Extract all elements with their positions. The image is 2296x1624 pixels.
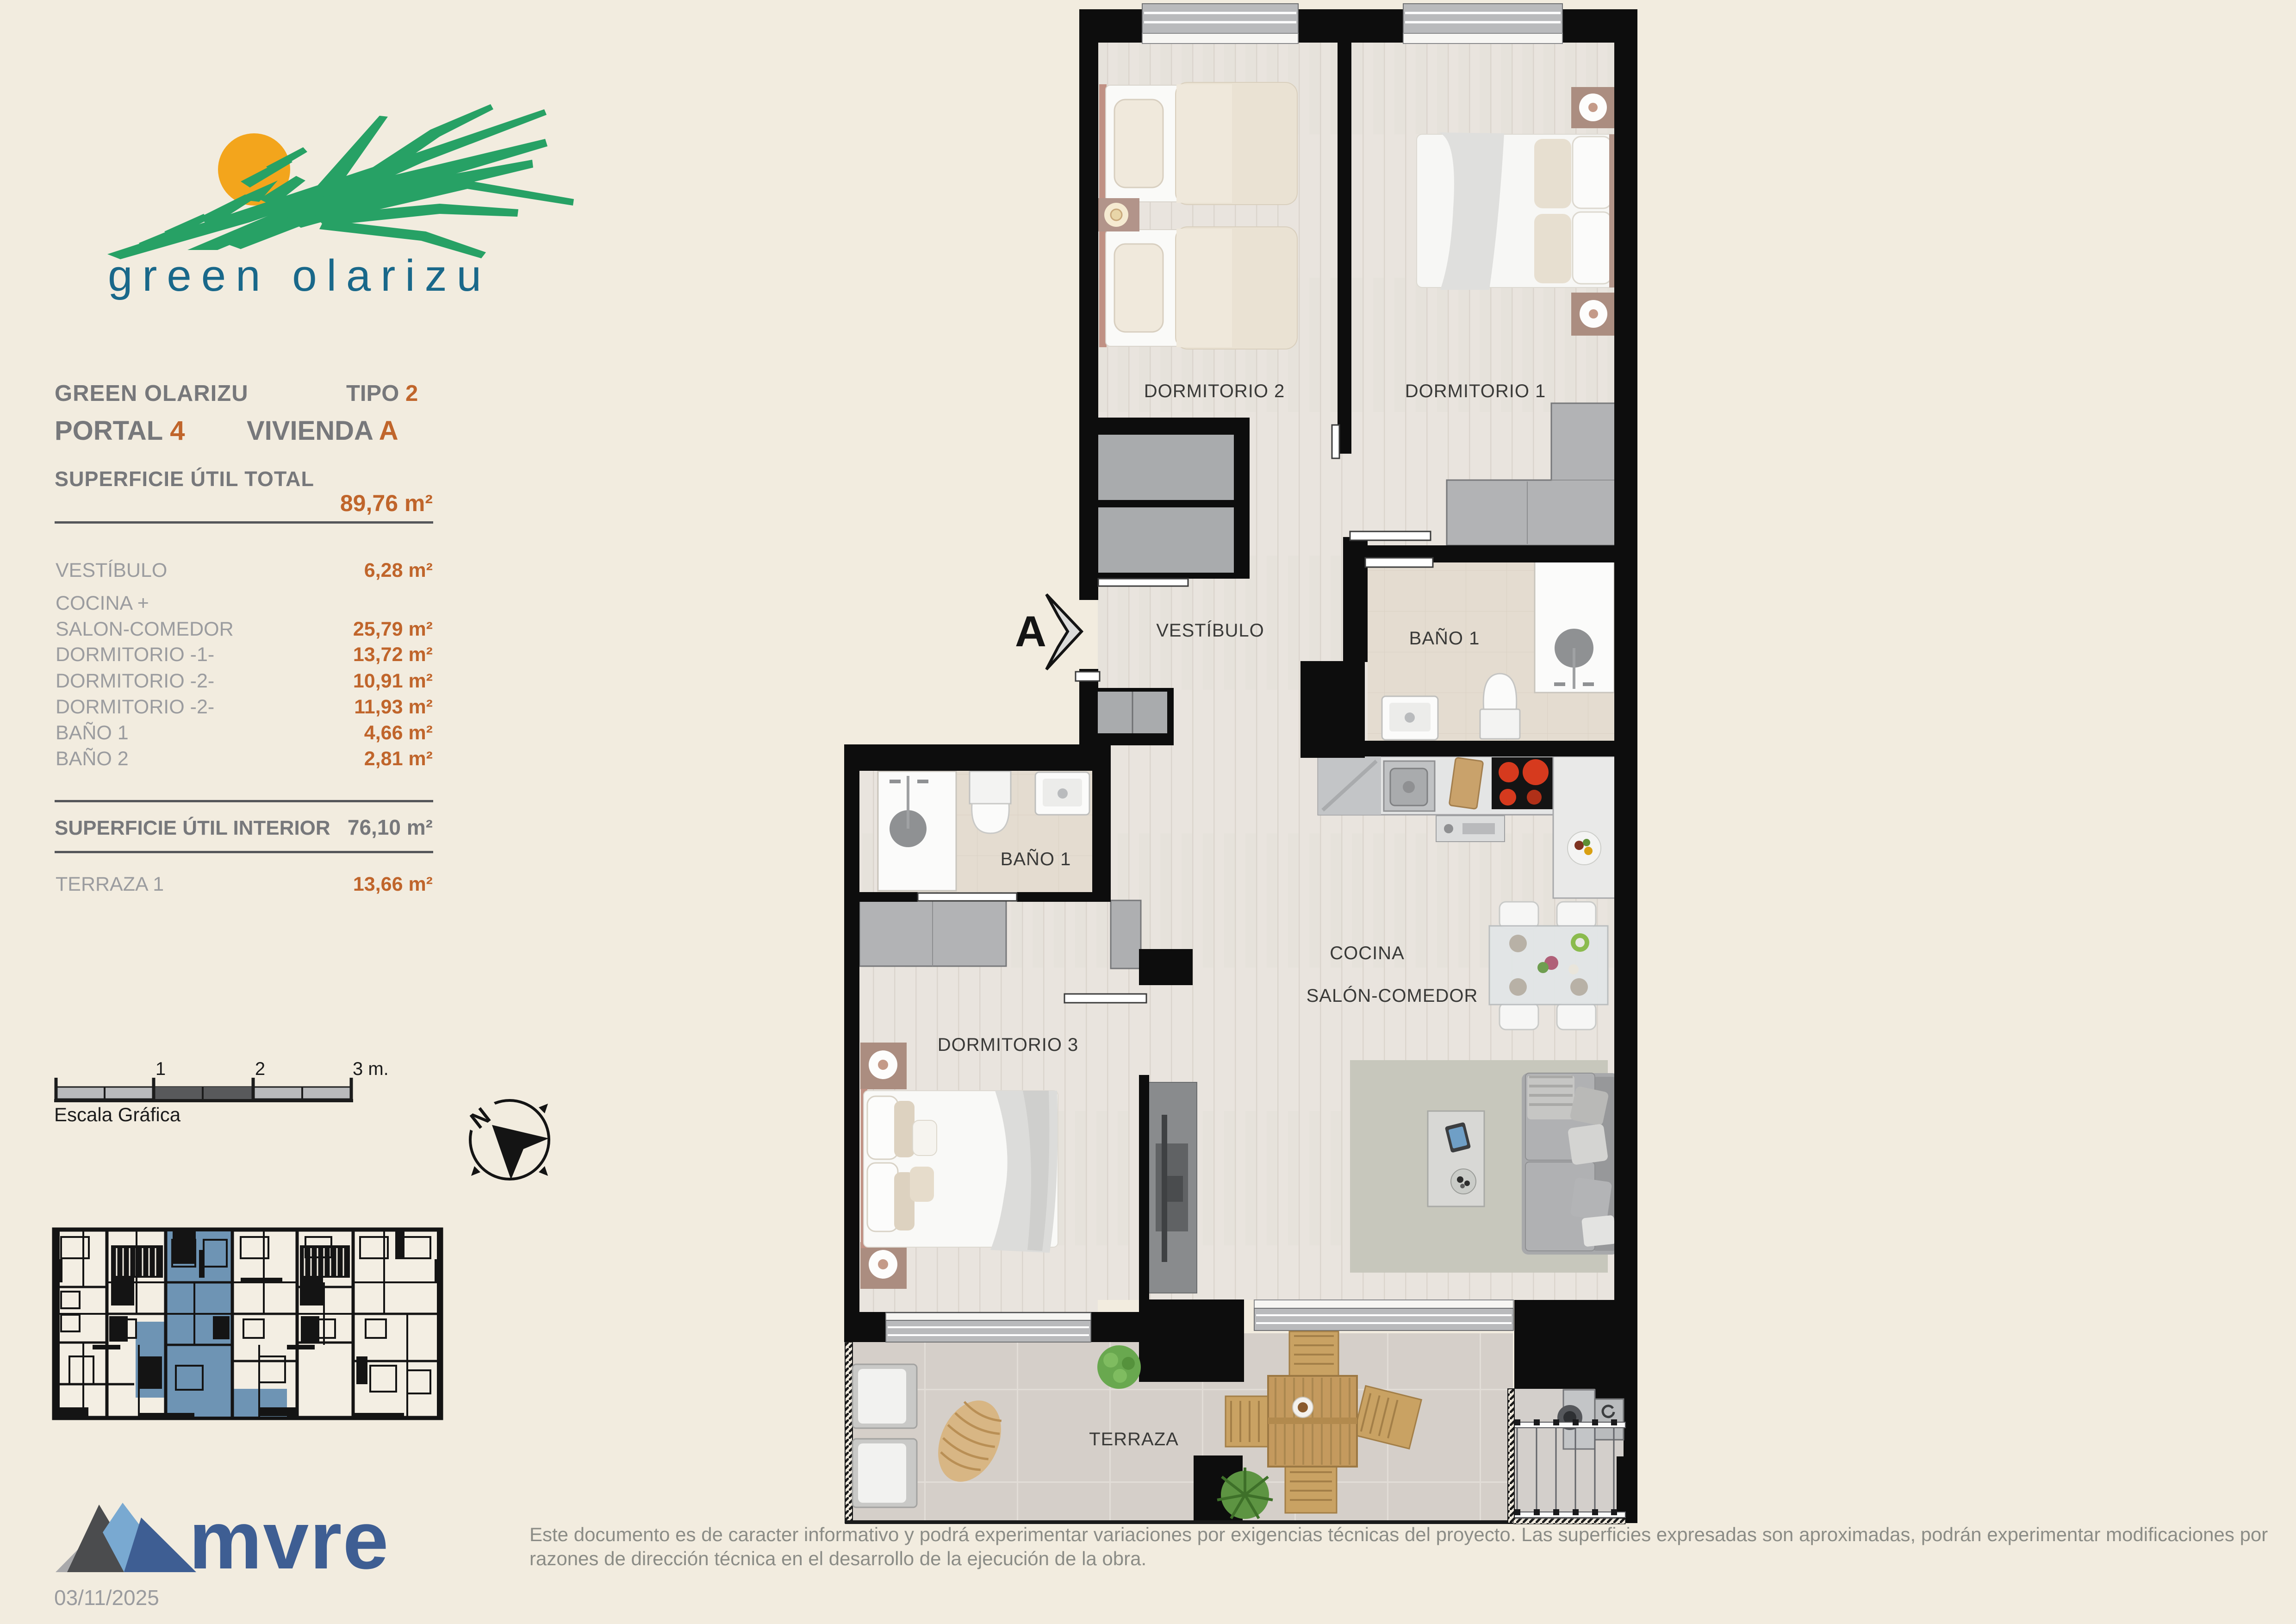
svg-text:green olarizu: green olarizu bbox=[108, 251, 491, 300]
svg-text:DORMITORIO -2-: DORMITORIO -2- bbox=[56, 696, 214, 718]
svg-text:2: 2 bbox=[255, 1059, 265, 1079]
svg-text:10,91 m²: 10,91 m² bbox=[353, 670, 433, 692]
svg-text:03/11/2025: 03/11/2025 bbox=[54, 1586, 159, 1610]
svg-text:A: A bbox=[1015, 607, 1046, 656]
svg-text:SUPERFICIE ÚTIL TOTAL: SUPERFICIE ÚTIL TOTAL bbox=[55, 467, 314, 491]
svg-text:VIVIENDA A: VIVIENDA A bbox=[247, 416, 398, 446]
svg-text:Escala Gráfica: Escala Gráfica bbox=[54, 1104, 181, 1125]
svg-text:PORTAL 4: PORTAL 4 bbox=[55, 416, 185, 446]
svg-text:TIPO 2: TIPO 2 bbox=[346, 381, 418, 406]
svg-text:BAÑO 1: BAÑO 1 bbox=[1409, 628, 1480, 649]
svg-text:DORMITORIO 1: DORMITORIO 1 bbox=[1405, 381, 1546, 401]
svg-text:Este documento es de caracter: Este documento es de caracter informativ… bbox=[529, 1524, 2268, 1545]
svg-text:11,93 m²: 11,93 m² bbox=[354, 696, 433, 718]
svg-text:13,66 m²: 13,66 m² bbox=[353, 873, 433, 895]
svg-text:BAÑO 2: BAÑO 2 bbox=[56, 748, 129, 770]
svg-text:BAÑO 1: BAÑO 1 bbox=[1001, 849, 1071, 869]
svg-text:VESTÍBULO: VESTÍBULO bbox=[1156, 620, 1264, 641]
svg-text:mvre: mvre bbox=[189, 1494, 390, 1586]
svg-text:TERRAZA 1: TERRAZA 1 bbox=[56, 873, 164, 895]
svg-text:DORMITORIO -1-: DORMITORIO -1- bbox=[56, 643, 214, 666]
svg-text:SALON-COMEDOR: SALON-COMEDOR bbox=[56, 618, 234, 640]
svg-text:SUPERFICIE ÚTIL INTERIOR: SUPERFICIE ÚTIL INTERIOR bbox=[55, 816, 330, 839]
svg-text:DORMITORIO -2-: DORMITORIO -2- bbox=[56, 670, 214, 692]
svg-text:VESTÍBULO: VESTÍBULO bbox=[56, 559, 167, 581]
svg-text:3 m.: 3 m. bbox=[353, 1059, 389, 1079]
svg-text:BAÑO 1: BAÑO 1 bbox=[56, 722, 129, 744]
svg-text:DORMITORIO 3: DORMITORIO 3 bbox=[938, 1035, 1079, 1055]
svg-text:4,66 m²: 4,66 m² bbox=[364, 722, 433, 744]
svg-text:2,81 m²: 2,81 m² bbox=[364, 748, 433, 770]
svg-text:COCINA +: COCINA + bbox=[56, 592, 149, 614]
svg-text:89,76 m²: 89,76 m² bbox=[340, 490, 433, 516]
svg-text:25,79 m²: 25,79 m² bbox=[353, 618, 433, 640]
svg-text:1: 1 bbox=[156, 1059, 166, 1079]
svg-text:SALÓN-COMEDOR: SALÓN-COMEDOR bbox=[1307, 985, 1478, 1006]
svg-text:TERRAZA: TERRAZA bbox=[1089, 1429, 1179, 1449]
svg-text:COCINA: COCINA bbox=[1330, 943, 1405, 963]
svg-text:13,72 m²: 13,72 m² bbox=[353, 643, 433, 666]
svg-text:DORMITORIO 2: DORMITORIO 2 bbox=[1144, 381, 1285, 401]
svg-text:76,10 m²: 76,10 m² bbox=[348, 815, 433, 839]
svg-text:6,28 m²: 6,28 m² bbox=[364, 559, 433, 581]
svg-text:GREEN OLARIZU: GREEN OLARIZU bbox=[55, 381, 249, 406]
svg-text:razones de dirección técnica e: razones de dirección técnica en el desar… bbox=[529, 1548, 1146, 1569]
